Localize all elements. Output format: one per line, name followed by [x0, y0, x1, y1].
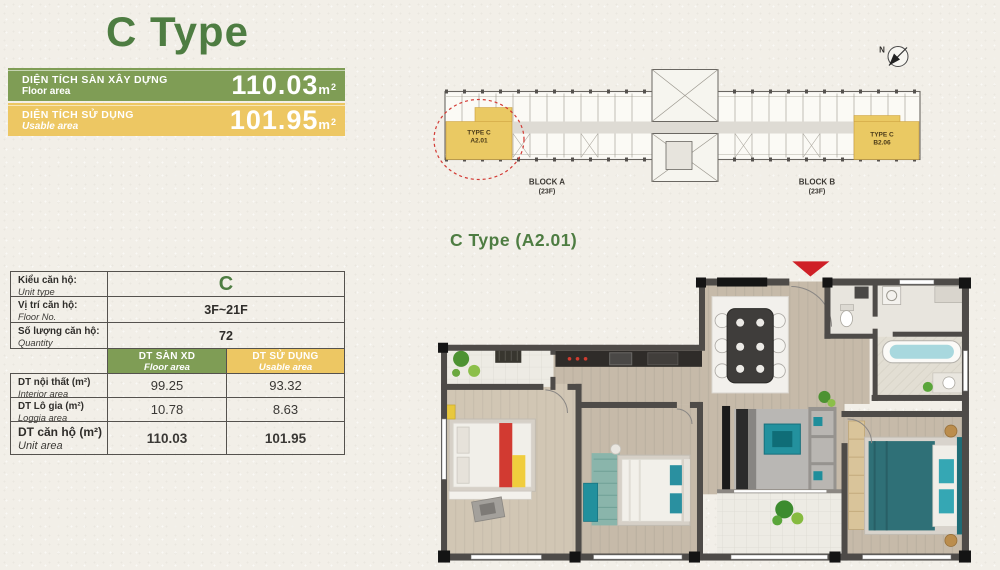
dining-set	[712, 297, 788, 393]
loggia-usable-value: 8.63	[226, 398, 345, 422]
floor-no-value: 3F~21F	[107, 297, 345, 323]
usable-area-value: 101.95m2	[230, 105, 337, 136]
nightstand	[945, 425, 957, 437]
floor-plan	[433, 258, 975, 570]
col-header-floor-area: DT SÀN XD Floor area	[107, 349, 226, 374]
bed-bench	[449, 491, 531, 499]
loggia-floor-value: 10.78	[107, 398, 226, 422]
compass-icon: N	[879, 46, 908, 67]
unit-right-type-label: TYPE C	[870, 132, 894, 139]
floor-area-label-en: Floor area	[22, 86, 168, 98]
unit-area-usable-value: 101.95	[226, 422, 345, 455]
brochure-page: { "page_title": "C Type", "banners": [ {…	[0, 0, 1000, 570]
compass-n-label: N	[879, 46, 885, 55]
unit-left-type-label: TYPE C	[467, 130, 491, 137]
floor-plan-title: C Type (A2.01)	[450, 230, 577, 251]
bedside-table	[611, 444, 621, 454]
row-floor-no: Vị trí căn hộ: Floor No. 3F~21F	[10, 297, 345, 323]
usable-area-label-en: Usable area	[22, 121, 134, 133]
washer	[883, 287, 901, 305]
page-title: C Type	[10, 8, 345, 56]
floor-area-value: 110.03m2	[231, 70, 337, 101]
interior-usable-value: 93.32	[226, 374, 345, 398]
teal-desk	[584, 483, 598, 521]
unit-right-code-label: B2.06	[873, 140, 891, 147]
usable-area-label-vn: DIỆN TÍCH SỬ DỤNG	[22, 109, 134, 121]
area-banners: DIỆN TÍCH SÀN XÂY DỰNG Floor area 110.03…	[8, 68, 345, 138]
floor-area-label-vn: DIỆN TÍCH SÀN XÂY DỰNG	[22, 74, 168, 86]
floor-area-banner: DIỆN TÍCH SÀN XÂY DỰNG Floor area 110.03…	[8, 68, 345, 101]
unit-area-label-vn: DT căn hộ (m²)	[18, 425, 107, 440]
nightstand	[945, 534, 957, 546]
interior-label-vn: DT nội thất (m²)	[18, 377, 107, 389]
unit-left-code-label: A2.01	[470, 138, 488, 145]
floor-no-label-vn: Vị trí căn hộ:	[18, 300, 107, 312]
unit-type-value: C	[219, 273, 233, 296]
row-unit-type: Kiểu căn hộ: Unit type C	[10, 271, 345, 297]
plant	[791, 512, 803, 524]
kitchen-counter	[555, 351, 702, 367]
sink	[943, 377, 955, 389]
toilet	[841, 311, 853, 327]
row-col-headers: DT SÀN XD Floor area DT SỬ DỤNG Usable a…	[10, 349, 345, 374]
site-plan-building: TYPE C A2.01 TYPE C B2.06 BLOCK A (23F) …	[434, 70, 920, 196]
block-a-floors-label: (23F)	[539, 189, 556, 196]
plant	[923, 382, 933, 392]
master-bedroom-furniture	[849, 421, 965, 546]
block-b-label: BLOCK B	[799, 178, 836, 187]
unit-area-floor-value: 110.03	[107, 422, 226, 455]
col-header-usable-area: DT SỬ DỤNG Usable area	[226, 349, 345, 374]
plant	[468, 365, 480, 377]
shelf	[935, 287, 963, 303]
row-quantity: Số lượng căn hộ: Quantity 72	[10, 323, 345, 349]
loggia-label-vn: DT Lô gia (m²)	[18, 401, 107, 413]
unit-area-label-en: Unit area	[18, 440, 107, 454]
row-interior-area: DT nội thất (m²) Interior area 99.25 93.…	[10, 374, 345, 398]
block-b-floors-label: (23F)	[809, 189, 826, 196]
site-plan: TYPE C A2.01 TYPE C B2.06 BLOCK A (23F) …	[430, 42, 935, 200]
usable-area-banner: DIỆN TÍCH SỬ DỤNG Usable area 101.95m2	[8, 103, 345, 136]
quantity-value: 72	[107, 323, 345, 349]
tv-cabinet	[722, 406, 730, 491]
entry-arrow-icon	[792, 261, 829, 276]
plant	[453, 351, 469, 367]
plant	[452, 369, 460, 377]
row-unit-area: DT căn hộ (m²) Unit area 110.03 101.95	[10, 422, 345, 455]
bedroom-2-furniture	[584, 444, 690, 525]
quantity-label-vn: Số lượng căn hộ:	[18, 326, 107, 338]
plant	[827, 399, 835, 407]
wc-sink	[855, 287, 869, 299]
unit-type-label-vn: Kiểu căn hộ:	[18, 275, 107, 287]
block-a-label: BLOCK A	[529, 178, 565, 187]
site-highlight-unit-right: TYPE C B2.06	[854, 116, 919, 160]
spec-table: Kiểu căn hộ: Unit type C Vị trí căn hộ: …	[10, 271, 345, 455]
dining-table	[727, 309, 773, 383]
row-loggia-area: DT Lô gia (m²) Loggia area 10.78 8.63	[10, 398, 345, 422]
interior-floor-value: 99.25	[107, 374, 226, 398]
plant	[772, 515, 782, 525]
